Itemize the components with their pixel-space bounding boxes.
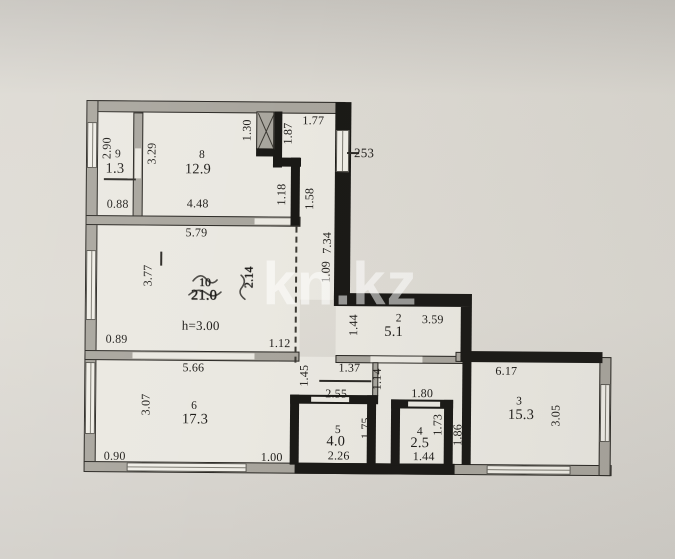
window-room3-bottom [487,465,571,475]
room-area: 21.0 [191,287,217,304]
door-room8 [255,218,293,224]
dimension-label: 1.09 [319,261,334,283]
plan-labels: 2.903.2991.30.88812.94.485.791.301.871.7… [2,0,675,3]
dimension-label: 7.34 [320,232,335,254]
window-room6 [85,362,96,434]
dimension-label: 0.90 [104,449,126,464]
duct-shaft [256,111,274,149]
dim-line-13 [104,178,136,180]
dimension-label: 1.73 [430,414,445,436]
dimension-label: 1.77 [302,113,324,128]
dimension-label: 3.29 [144,143,159,165]
wall-room2-right [460,307,471,357]
room-number: 6 [191,400,197,412]
window-room9 [87,122,97,168]
dimension-label: 1.30 [240,119,255,141]
tick [160,252,162,266]
window-room10 [86,250,97,320]
room-area: 15.3 [508,407,534,424]
dimension-label: 2.55 [325,386,347,401]
room-number: 9 [115,148,121,160]
wall-room2-top [334,293,472,307]
duct-cap [256,148,274,156]
wall-room4-left [391,399,401,465]
dimension-label: 0.89 [106,332,128,347]
room-number: 8 [199,149,205,161]
wall-niche-3 [291,158,301,226]
floor-plan: 2.903.2991.30.88812.94.485.791.301.871.7… [0,0,675,559]
plan-note: 253 [354,145,374,161]
dimension-label: 1.12 [269,336,291,351]
dimension-label: 0.88 [107,197,129,212]
dimension-label: 2.26 [328,448,350,463]
room-area: 5.1 [384,324,403,341]
plan-note: h=3.00 [182,318,220,334]
dimension-label: 1.44 [346,314,361,336]
dimension-label: 4.48 [187,196,209,211]
dimension-label: 6.17 [495,364,517,379]
window-room6-bottom [127,462,247,472]
window-253 [336,130,349,172]
window-room3-right [600,384,610,442]
room-fill [467,358,608,469]
dimension-label: 1.87 [281,123,296,145]
dimension-label: 1.37 [338,360,360,375]
dimension-label: 1.80 [411,386,433,401]
opening-room10-room6 [132,352,254,359]
dim-line-137 [319,380,371,382]
dimension-label: 1.58 [302,188,317,210]
dimension-label: 3.77 [141,265,156,287]
dimension-label: 1.14 [370,368,385,390]
dimension-label: 1.18 [274,184,289,206]
dimension-label: 1.44 [413,449,435,464]
room-number: 3 [516,395,522,407]
dimension-label: 3.07 [139,394,154,416]
dimension-label: 3.05 [548,405,563,427]
room-area: 12.9 [185,161,211,178]
room-area: 17.3 [182,411,208,428]
dimension-label: 2.90 [100,137,115,159]
dimension-label: 5.79 [185,225,207,240]
wall-room3-top [460,351,602,363]
wall-room5-left [290,395,300,465]
room-number: 2 [396,312,402,324]
dimension-label: 1.00 [261,450,283,465]
floor-plan-photo: 2.903.2991.30.88812.94.485.791.301.871.7… [0,0,675,559]
wall-top-exterior [93,100,345,114]
door-room9 [135,148,141,178]
wall-room3-left [462,362,472,465]
dimension-label: 1.86 [450,424,465,446]
room-area: 1.3 [106,161,125,178]
dimension-label: 2.14 [242,266,257,288]
dimension-label: 5.66 [182,360,204,375]
door-room4 [408,402,440,407]
dimension-label: 3.59 [422,312,444,327]
dimension-label: 1.75 [358,417,373,439]
dimension-label: 1.45 [297,365,312,387]
